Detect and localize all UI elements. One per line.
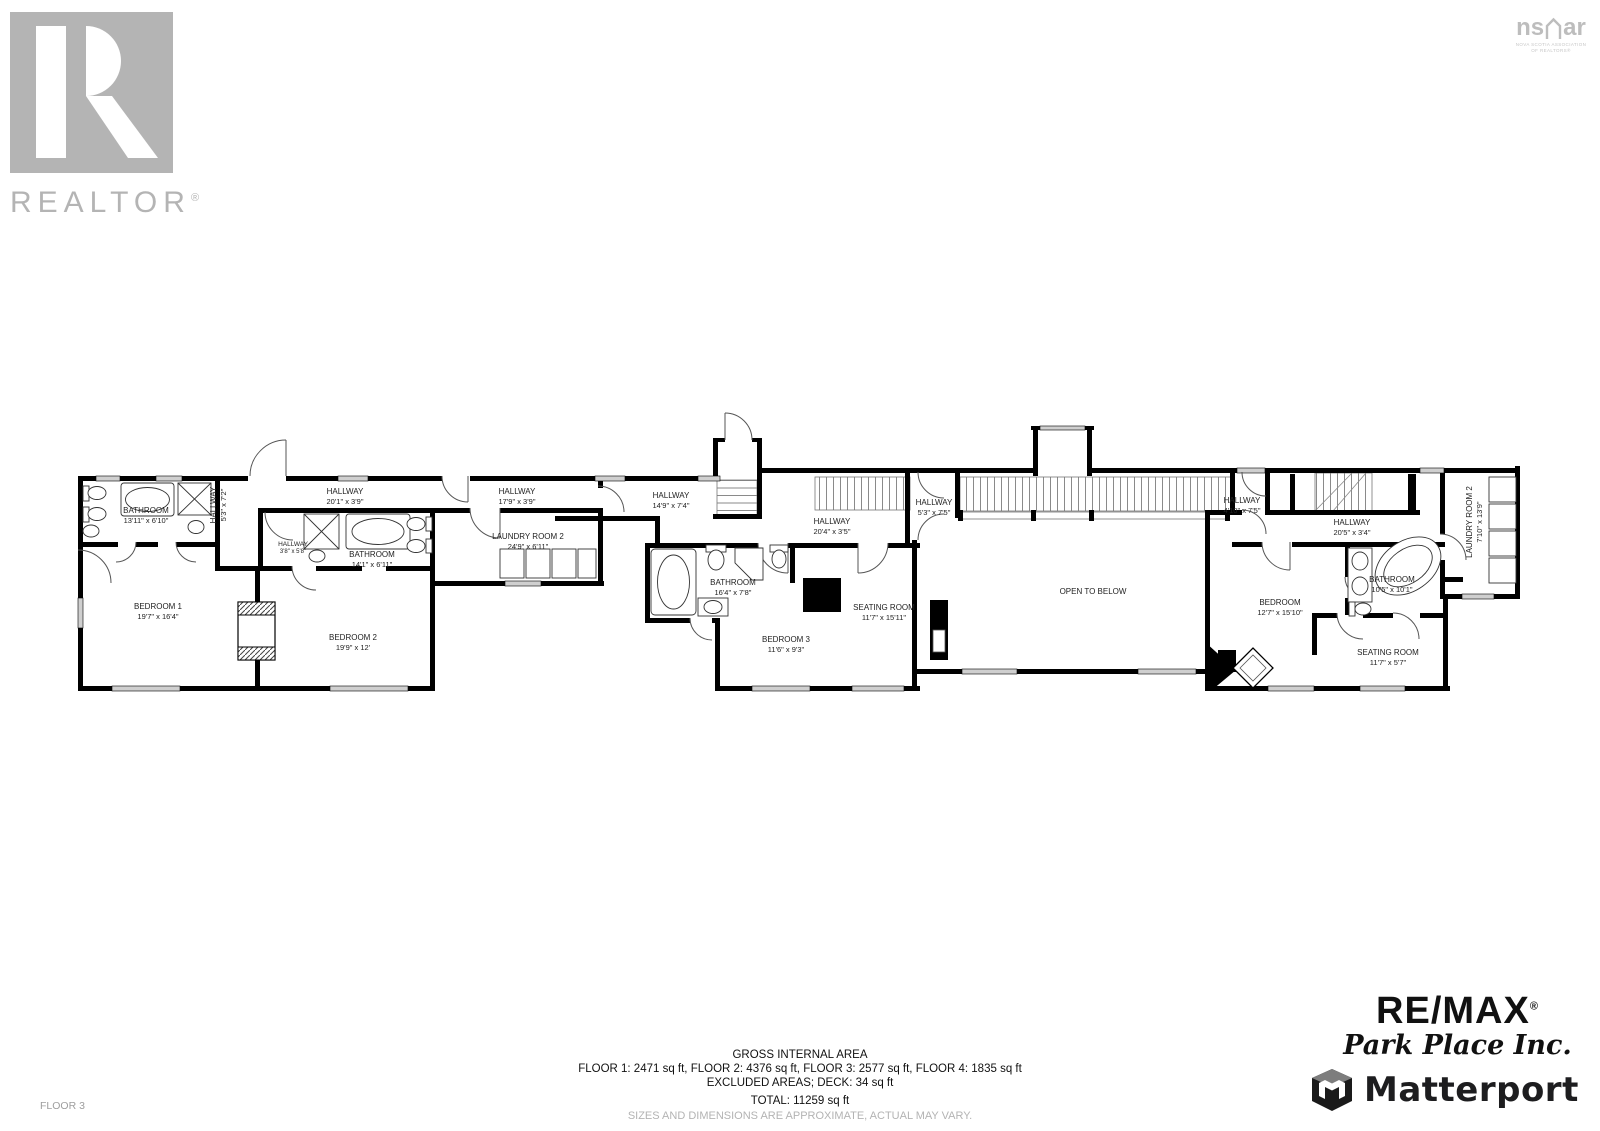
chimney xyxy=(238,602,275,660)
floorplan-drawing xyxy=(0,0,1600,1131)
room-label-hallway-8: HALLWAY4'10" x 7'5" xyxy=(1224,496,1261,516)
room-label-bedroom-1: BEDROOM 119'7" x 16'4" xyxy=(134,602,182,622)
fireplace-corner xyxy=(1233,648,1273,688)
room-label-bathroom-4: BATHROOM10'5" x 10'1" xyxy=(1369,575,1415,595)
room-label-laundry-room-2-right: LAUNDRY ROOM 27'10" x 13'9" xyxy=(1465,486,1485,558)
room-label-hallway-4: HALLWAY17'9" x 3'9" xyxy=(499,487,536,507)
fireplace-seating xyxy=(930,600,948,660)
room-label-hallway-2: HALLWAY20'1" x 3'9" xyxy=(327,487,364,507)
room-label-hallway-9: HALLWAY20'5" x 3'4" xyxy=(1334,518,1371,538)
staircase-main xyxy=(815,477,910,510)
room-label-bathroom-1: BATHROOM13'11" x 6'10" xyxy=(123,506,169,526)
room-label-hallway-6: HALLWAY20'4" x 3'5" xyxy=(814,517,851,537)
room-label-open-to-below: OPEN TO BELOW xyxy=(1060,587,1127,597)
room-label-seating-room-2: SEATING ROOM11'7" x 5'7" xyxy=(1357,648,1419,668)
room-label-bedroom-3: BEDROOM 311'6" x 9'3" xyxy=(762,635,810,655)
room-label-laundry-room-2-mid: LAUNDRY ROOM 224'9" x 6'11" xyxy=(492,532,564,552)
room-label-bedroom-2: BEDROOM 219'9" x 12' xyxy=(329,633,377,653)
room-label-hallway-1: HALLWAY5'3" x 7'2" xyxy=(209,487,229,524)
staircase-entry xyxy=(717,480,757,515)
bridge-railing xyxy=(960,477,1232,511)
room-label-hallway-3: HALLWAY3'8" x 5'8" xyxy=(278,541,308,557)
staircase-winder xyxy=(1315,473,1372,511)
room-label-bathroom-3: BATHROOM16'4" x 7'8" xyxy=(710,578,756,598)
room-label-hallway-7: HALLWAY5'3" x 7'5" xyxy=(916,498,953,518)
room-label-bedroom-4: BEDROOM12'7" x 15'10" xyxy=(1257,598,1302,618)
room-label-hallway-5: HALLWAY14'9" x 7'4" xyxy=(653,491,690,511)
room-label-bathroom-2: BATHROOM14'1" x 6'11" xyxy=(349,550,395,570)
room-label-seating-room-1: SEATING ROOM11'7" x 15'11" xyxy=(853,603,915,623)
